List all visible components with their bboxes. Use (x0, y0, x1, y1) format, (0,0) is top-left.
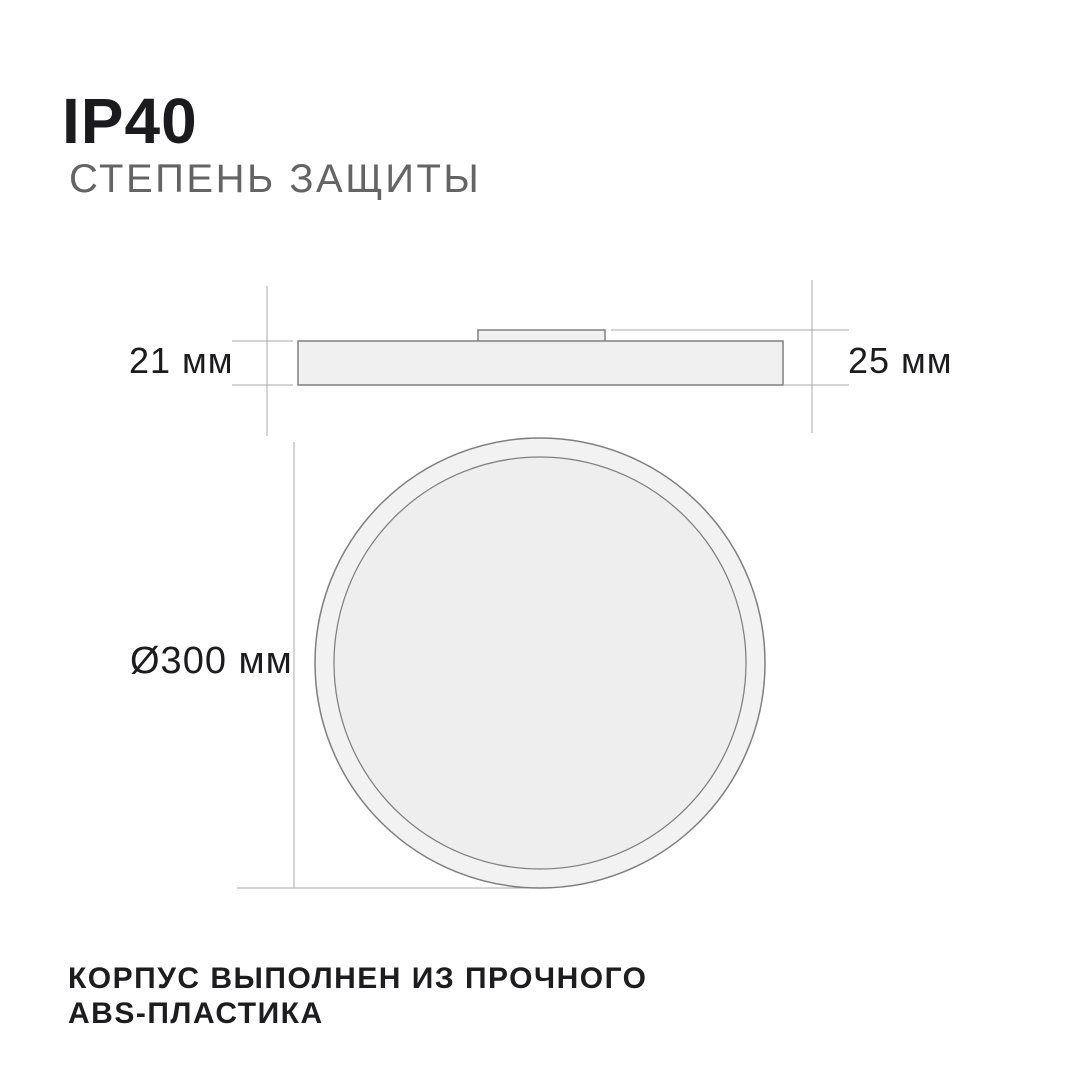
protection-rating-title: IP40 (62, 84, 198, 158)
protection-rating-subtitle: СТЕПЕНЬ ЗАЩИТЫ (69, 157, 481, 202)
diameter-dimension-label: Ø300 мм (130, 640, 293, 683)
material-note-line2: ABS-ПЛАСТИКА (68, 996, 648, 1031)
mounting-plate (478, 330, 605, 342)
lamp-body-side-view (298, 341, 783, 385)
lamp-diffuser-circle (334, 457, 746, 869)
side-view-drawing (232, 280, 849, 436)
top-view-drawing (237, 438, 765, 888)
body-height-dimension-label: 21 мм (129, 340, 234, 382)
total-height-dimension-label: 25 мм (848, 340, 953, 382)
material-note-line1: КОРПУС ВЫПОЛНЕН ИЗ ПРОЧНОГО (68, 961, 648, 996)
material-note: КОРПУС ВЫПОЛНЕН ИЗ ПРОЧНОГО ABS-ПЛАСТИКА (68, 961, 648, 1031)
product-spec-infographic: IP40 СТЕПЕНЬ ЗАЩИТЫ 21 мм 25 мм Ø300 мм … (0, 0, 1080, 1080)
